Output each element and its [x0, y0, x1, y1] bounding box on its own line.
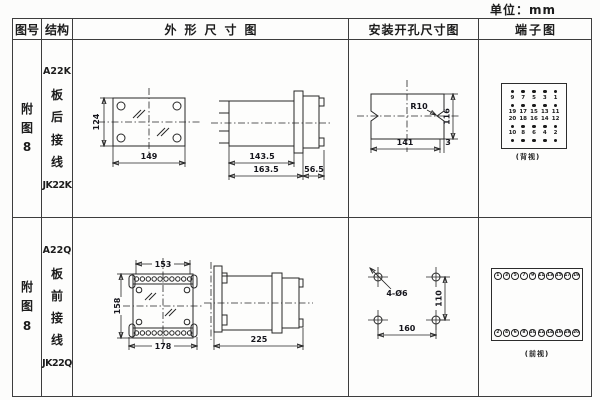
dim-edge-offset: 3 [445, 138, 451, 147]
side-view: 225 [204, 262, 313, 350]
terminal-number: 15 [530, 110, 538, 116]
dim-front-height: 124 [92, 113, 101, 130]
datasheet-page: 单位：mm 图号 结构 外形尺寸图 安装开孔尺寸图 端子图 附图8 A22K 板… [0, 0, 600, 400]
terminal-dot [554, 104, 558, 108]
dimension-table: 图号 结构 外形尺寸图 安装开孔尺寸图 端子图 附图8 A22K 板后接线 JK… [12, 18, 592, 397]
terminal-circle-number: 19 [572, 272, 580, 280]
terminal-dot [532, 139, 536, 143]
terminal-circle-number: 10 [529, 329, 537, 337]
terminal-number: 10 [509, 131, 517, 137]
fig-no-text: 附图8 [20, 100, 35, 158]
terminal-circle-number: 3 [503, 272, 511, 280]
dim-body-depth: 143.5 [249, 152, 275, 161]
row1-fig-no: 附图8 [13, 40, 42, 218]
terminal-number: 13 [541, 110, 549, 116]
dim-front-width: 178 [155, 342, 172, 351]
terminal-circle-number: 20 [572, 329, 580, 337]
wiring-label: 板前接线 [50, 263, 65, 352]
dim-front-height: 158 [113, 297, 122, 314]
terminal-circle-number: 16 [555, 329, 563, 337]
terminal-dot [511, 90, 515, 94]
row1-mounting-cell: R10 116 141 3 [349, 40, 479, 218]
header-structure: 结构 [42, 19, 73, 40]
terminal-dot [554, 125, 558, 129]
row2-fig-no: 附图8 [13, 218, 42, 396]
terminal-dot [532, 125, 536, 129]
terminal-dot [543, 90, 547, 94]
terminal-dot [521, 90, 525, 94]
outline-drawing-a22q: 153 158 178 [73, 218, 349, 396]
terminal-circle-number: 5 [511, 272, 519, 280]
front-view: 153 158 178 [113, 258, 203, 351]
dim-total-depth: 163.5 [253, 165, 279, 174]
row2-mounting-cell: 4-Ø6 110 160 [349, 218, 479, 396]
terminal-circle-number: 2 [494, 329, 502, 337]
terminal-circle-number: 8 [520, 329, 528, 337]
terminal-number: 16 [530, 117, 538, 123]
terminal-caption: (前视) [481, 349, 593, 359]
model-label: A22K [43, 66, 71, 77]
terminal-dot [543, 139, 547, 143]
wiring-label: 板后接线 [50, 84, 65, 173]
mounting-drawing-a22k: R10 116 141 3 [349, 40, 479, 218]
terminal-dot [511, 125, 515, 129]
terminal-circle-number: 11 [538, 272, 546, 280]
unit-label: 单位：mm [490, 1, 556, 18]
code-label: JK22K [43, 180, 72, 191]
terminal-number: 1 [554, 96, 558, 102]
model-label: A22Q [43, 245, 72, 256]
terminal-dot [521, 125, 525, 129]
row1-outline-cell: 124 149 [73, 40, 349, 218]
terminal-circle-number: 4 [503, 329, 511, 337]
row1-terminal-cell: 97531 1917151311 2018161412 108642 (背视) [479, 40, 591, 218]
row2-terminal-cell: 135791113151719 2468101214161820 (前视) [479, 218, 591, 396]
terminal-circle-number: 6 [511, 329, 519, 337]
terminal-dot [554, 139, 558, 143]
header-mounting: 安装开孔尺寸图 [349, 19, 479, 40]
fig-no-text: 附图8 [20, 278, 35, 336]
terminal-circle-number: 13 [546, 272, 554, 280]
terminal-number: 19 [509, 110, 517, 116]
terminal-caption: (背视) [472, 152, 584, 162]
terminal-dot [543, 125, 547, 129]
terminal-number: 20 [509, 117, 517, 123]
terminal-dot [511, 139, 515, 143]
dim-total-depth: 225 [251, 335, 268, 344]
terminal-number: 8 [521, 131, 525, 137]
terminal-number: 2 [554, 131, 558, 137]
terminal-number: 9 [510, 96, 514, 102]
terminal-dot [532, 90, 536, 94]
dim-rear-depth: 56.5 [304, 165, 324, 174]
terminal-dot [511, 104, 515, 108]
front-view: 124 149 [92, 88, 200, 167]
header-terminal: 端子图 [479, 19, 591, 40]
dim-top-width: 153 [155, 260, 172, 269]
terminal-dot [521, 139, 525, 143]
terminal-circle-number: 7 [520, 272, 528, 280]
terminal-number: 6 [532, 131, 536, 137]
terminal-dot [554, 90, 558, 94]
terminal-circle-number: 1 [494, 272, 502, 280]
terminal-number: 12 [552, 117, 560, 123]
row2-outline-cell: 153 158 178 [73, 218, 349, 396]
terminal-number: 5 [532, 96, 536, 102]
terminal-number: 11 [552, 110, 560, 116]
terminal-dot [543, 104, 547, 108]
terminal-circle-number: 12 [538, 329, 546, 337]
terminal-number: 3 [543, 96, 547, 102]
terminal-circle-number: 14 [546, 329, 554, 337]
terminal-circle-number: 9 [529, 272, 537, 280]
terminal-number: 17 [519, 110, 527, 116]
terminal-row-top: 135791113151719 [494, 272, 580, 280]
terminal-dot [521, 104, 525, 108]
terminal-number: 7 [521, 96, 525, 102]
mounting-drawing-a22q: 4-Ø6 110 160 [349, 218, 479, 396]
terminal-row-bottom: 2468101214161820 [494, 329, 580, 337]
terminal-number: 14 [541, 117, 549, 123]
terminal-number: 4 [543, 131, 547, 137]
row1-structure: A22K 板后接线 JK22K [42, 40, 73, 218]
terminal-number: 18 [519, 117, 527, 123]
row2-structure: A22Q 板前接线 JK22Q [42, 218, 73, 396]
header-fig-no: 图号 [13, 19, 42, 40]
terminal-circle-number: 18 [564, 329, 572, 337]
code-label: JK22Q [42, 358, 72, 369]
dim-hole-spacing-h: 160 [399, 324, 416, 333]
header-outline: 外形尺寸图 [73, 19, 349, 40]
terminal-diagram-front: 135791113151719 2468101214161820 [491, 268, 583, 341]
dim-hole-spacing-v: 110 [435, 290, 444, 307]
terminal-circle-number: 15 [555, 272, 563, 280]
dim-radius: R10 [410, 102, 428, 111]
dim-holes: 4-Ø6 [386, 288, 408, 298]
dim-cutout-height: 116 [443, 108, 452, 125]
dim-cutout-width: 141 [397, 138, 414, 147]
side-view: 143.5 163.5 56.5 [211, 91, 331, 180]
outline-drawing-a22k: 124 149 [73, 40, 349, 218]
terminal-diagram-rear: 97531 1917151311 2018161412 108642 [501, 83, 567, 149]
terminal-circle-number: 17 [564, 272, 572, 280]
terminal-dot [532, 104, 536, 108]
dim-front-width: 149 [141, 152, 158, 161]
